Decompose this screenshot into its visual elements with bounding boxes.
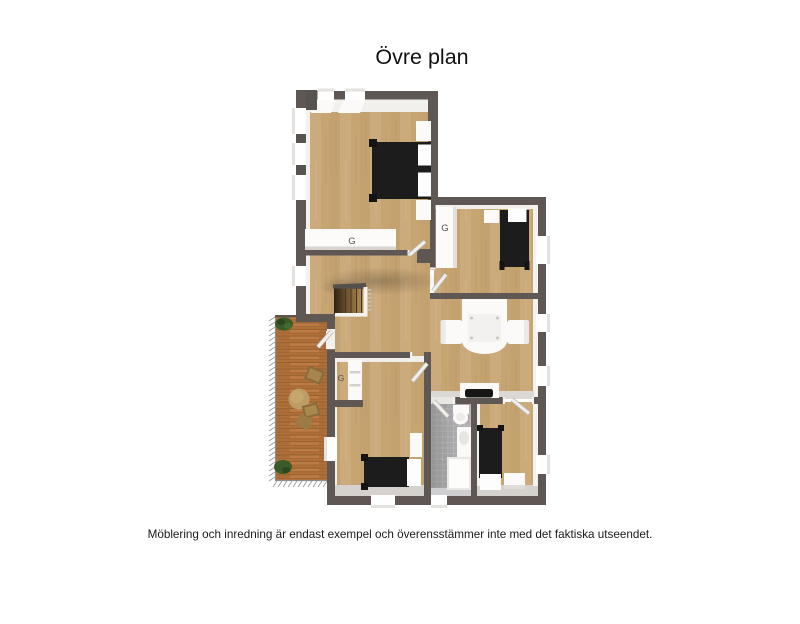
svg-text:Övre plan: Övre plan bbox=[375, 45, 468, 69]
svg-text:G: G bbox=[348, 236, 355, 247]
svg-text:G: G bbox=[338, 373, 345, 383]
svg-text:Möblering och inredning är end: Möblering och inredning är endast exempe… bbox=[148, 528, 653, 541]
svg-text:G: G bbox=[441, 223, 448, 234]
